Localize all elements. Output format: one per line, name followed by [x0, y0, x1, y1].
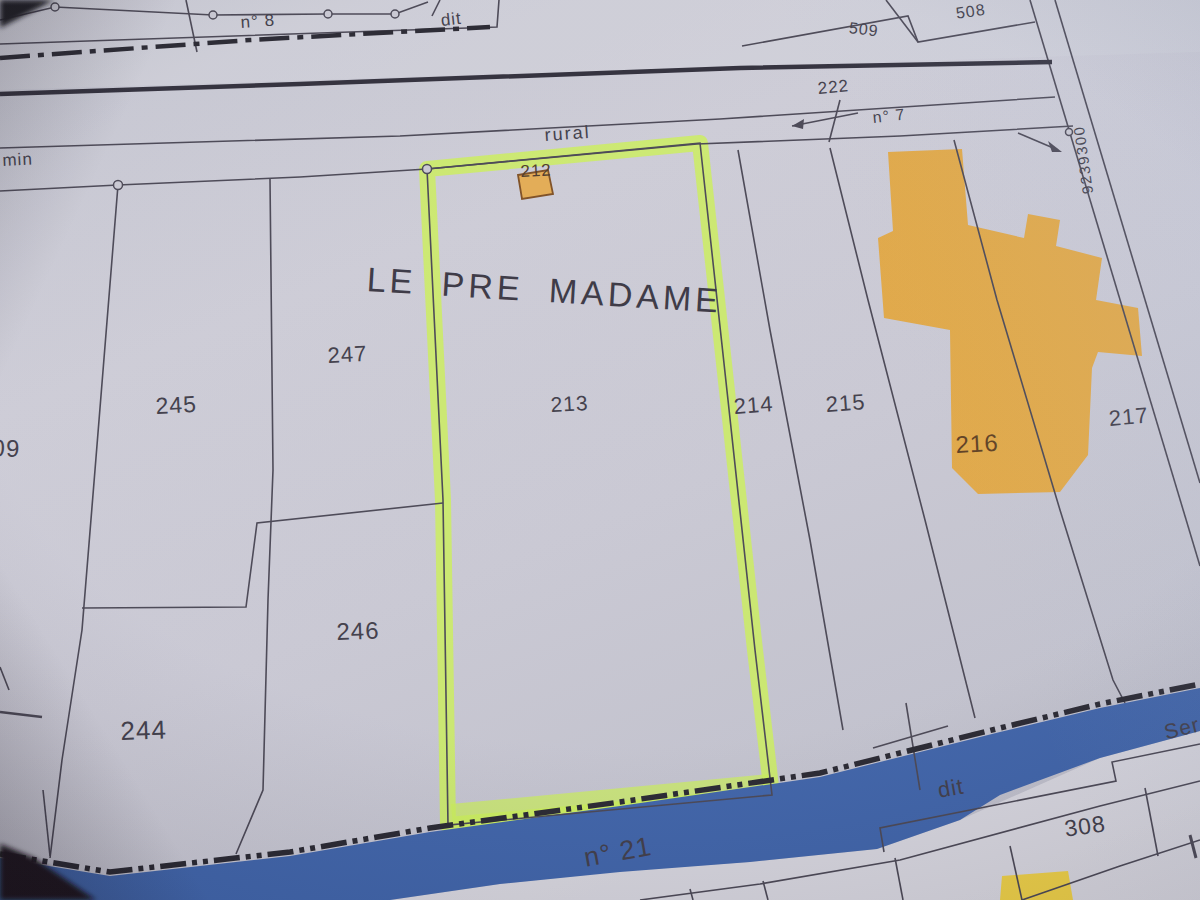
survey-marker-circle: [209, 11, 217, 19]
parcel-label-246: 246: [336, 618, 380, 643]
west-boundary-line: [50, 185, 118, 858]
cross-mark-222: [829, 100, 840, 142]
parcel-label-247: 247: [327, 343, 368, 367]
parcel-label-213: 213: [550, 392, 589, 415]
survey-marker-circle: [324, 10, 332, 18]
path-label-dit-top: dit: [440, 10, 463, 29]
parcel-label-214: 214: [733, 393, 774, 418]
parcel-label-216: 216: [955, 431, 999, 457]
parcel-213-outline: [427, 143, 772, 825]
parcel-label-217: 217: [1108, 405, 1149, 430]
survey-marker-circle: [114, 181, 123, 190]
grid-arrowhead: [1048, 141, 1062, 152]
road-label-chemin-fragment: min: [2, 150, 33, 169]
survey-marker-circle: [51, 3, 59, 11]
parcel-label-509: 509: [848, 20, 879, 40]
parcel-244-stream-tick: [43, 790, 50, 856]
cadastral-map-photo: n° 8 dit 509 508 222 n° 7 min rural 9239…: [0, 0, 1200, 900]
boundary-245-247: [236, 179, 273, 854]
road-label-rural: rural: [544, 123, 591, 144]
highlighted-parcel-outline: [427, 143, 772, 825]
building-footprint-216: [878, 149, 1142, 494]
parcel-label-308: 308: [1063, 812, 1107, 841]
parcel-label-212: 212: [520, 161, 552, 180]
path-label-n7: n° 7: [872, 107, 906, 126]
map-geometry: [0, 0, 1200, 900]
survey-marker-circle: [391, 10, 399, 18]
parcel-label-215: 215: [825, 391, 866, 416]
path-label-n8: n° 8: [240, 12, 276, 31]
parcel-label-209-partial: 09: [0, 436, 21, 461]
parcel-label-245: 245: [155, 393, 198, 418]
survey-marker-circle: [423, 165, 432, 174]
edge-mark-left-dash: [0, 712, 42, 717]
road-label-dit-bottom: dit: [936, 775, 966, 801]
parcel-label-244: 244: [120, 716, 167, 744]
parcel-label-222: 222: [817, 77, 850, 97]
boundary-step-247-246: [82, 503, 443, 608]
leader-arrowhead-222: [792, 119, 804, 129]
edge-mark-left-slash: [0, 667, 9, 690]
